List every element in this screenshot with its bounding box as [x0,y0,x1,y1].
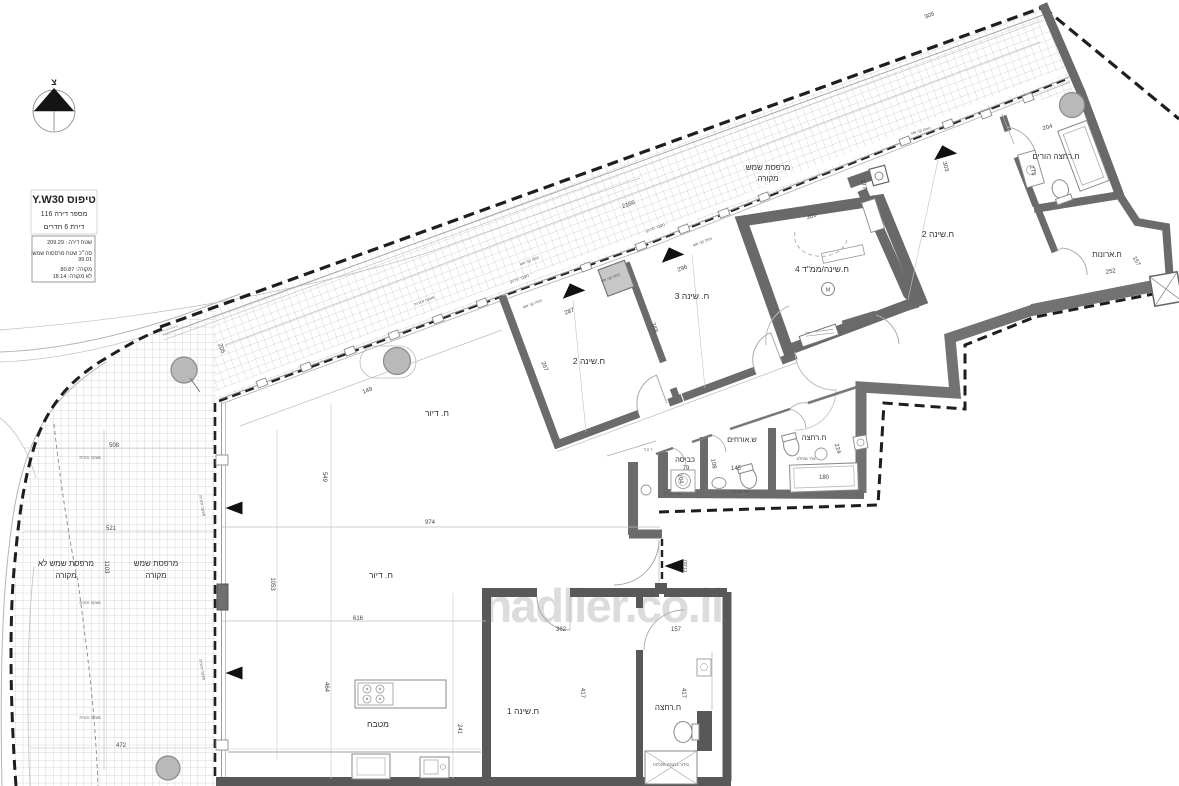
svg-text:אויר מוחלט: אויר מוחלט [731,489,750,494]
svg-text:אויר מוחלט: אויר מוחלט [663,491,682,496]
svg-text:508: 508 [109,443,120,449]
svg-text:472: 472 [116,743,127,749]
svg-text:549: 549 [321,472,327,483]
svg-text:מרפסת שמש: מרפסת שמש [746,163,790,172]
svg-text:מקורה: מקורה [757,174,778,183]
svg-text:79: 79 [683,466,690,472]
svg-text:מעקה זכוכית: מעקה זכוכית [79,715,100,720]
svg-text:דירת 6 חדרים: דירת 6 חדרים [44,224,85,231]
svg-text:כניסה: כניסה [682,560,688,573]
svg-text:417: 417 [680,688,686,699]
svg-text:כביסה: כביסה [675,455,695,464]
svg-text:לא מקורה: 18.14: לא מקורה: 18.14 [53,273,92,280]
svg-text:ח.שינה 2: ח.שינה 2 [573,356,605,366]
svg-text:ח.רחצה: ח.רחצה [802,433,827,442]
svg-text:464: 464 [323,682,329,693]
svg-text:טיפוס Y.W30: טיפוס Y.W30 [32,194,96,206]
svg-text:מקורה: מקורה [145,571,166,580]
svg-text:אויר מוחלט: אויר מוחלט [797,456,816,461]
svg-text:מרפסת שמש: מרפסת שמש [134,559,178,568]
svg-text:מקורה: 80.87: מקורה: 80.87 [61,267,93,273]
svg-text:מרפסת שמש לא: מרפסת שמש לא [38,559,94,568]
svg-text:145: 145 [731,466,742,472]
svg-text:מעקה זכוכית: מעקה זכוכית [79,455,100,460]
svg-text:ח.רחצה: ח.רחצה [655,703,681,712]
svg-text:צ: צ [51,77,57,87]
svg-text:180: 180 [819,475,830,481]
svg-text:מטבח: מטבח [367,719,389,729]
svg-text:שטח דירה : 209.29: שטח דירה : 209.29 [47,240,92,246]
svg-text:1053: 1053 [269,577,275,591]
svg-text:ח.שינה 1: ח.שינה 1 [507,706,539,716]
svg-text:99.01: 99.01 [78,257,92,263]
svg-text:521: 521 [106,526,117,532]
svg-text:ח. דיור: ח. דיור [425,408,449,418]
svg-text:241: 241 [456,724,462,735]
svg-text:ח. שינה 3: ח. שינה 3 [675,291,710,301]
svg-text:1103: 1103 [103,561,109,575]
svg-text:ח. דיור: ח. דיור [369,570,393,580]
svg-text:974: 974 [425,520,436,526]
svg-text:417: 417 [579,688,585,699]
svg-text:סה״כ שטח מרפסות שמש:: סה״כ שטח מרפסות שמש: [31,250,92,257]
svg-text:616: 616 [353,616,364,622]
svg-text:מקורה: מקורה [55,571,76,580]
svg-text:מספר דירה 116: מספר דירה 116 [41,211,88,218]
svg-text:ש.אורחים: ש.אורחים [727,435,757,444]
svg-text:nadlier.co.il: nadlier.co.il [483,579,722,632]
svg-text:סידור ברצפת מקלחת: סידור ברצפת מקלחת [653,762,689,767]
svg-text:362: 362 [556,627,567,633]
svg-text:מעקה זכוכית: מעקה זכוכית [79,600,100,605]
svg-text:ח.רחצה הורים: ח.רחצה הורים [1032,152,1079,161]
svg-text:ח.שינה/ממ"ד 4: ח.שינה/ממ"ד 4 [795,264,849,274]
svg-text:ר.ה.ד: ר.ה.ד [643,447,652,452]
svg-text:ח.ארונות: ח.ארונות [1092,250,1122,259]
svg-text:ח.שינה 2: ח.שינה 2 [922,229,954,239]
svg-text:M: M [826,288,831,294]
svg-text:157: 157 [671,627,682,633]
